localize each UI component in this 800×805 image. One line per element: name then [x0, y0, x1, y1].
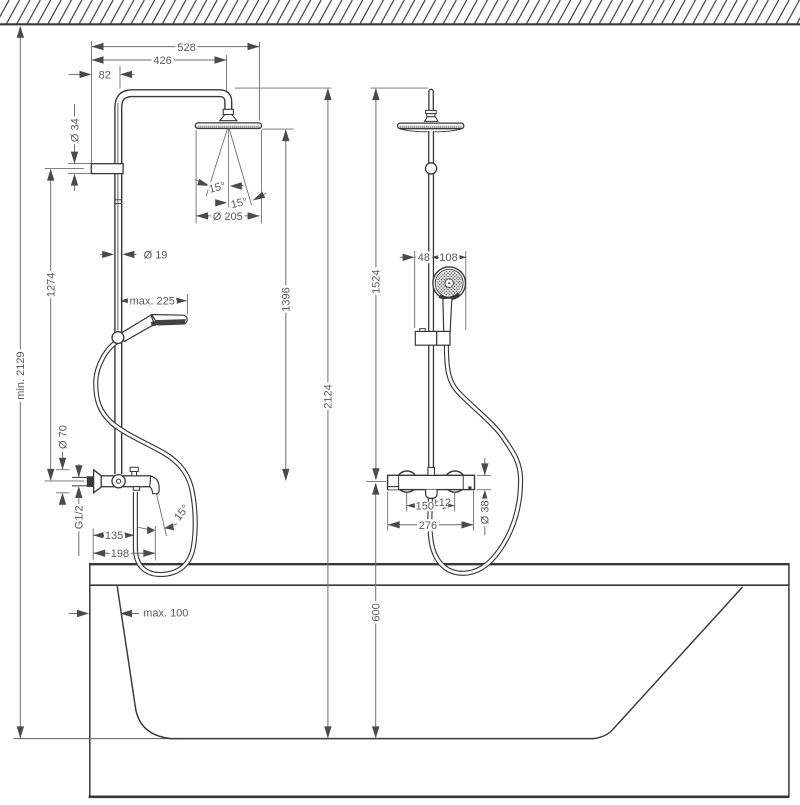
svg-text:Ø 34: Ø 34	[69, 118, 81, 142]
svg-text:1274: 1274	[46, 273, 58, 297]
svg-text:600: 600	[371, 603, 383, 621]
svg-text:Ø 38: Ø 38	[480, 500, 492, 524]
svg-text:Ø 70: Ø 70	[57, 425, 69, 449]
svg-text:528: 528	[177, 42, 195, 54]
svg-text:max. 225: max. 225	[130, 296, 175, 308]
svg-text:±12: ±12	[433, 497, 451, 509]
svg-text:82: 82	[99, 69, 111, 81]
svg-text:108: 108	[439, 252, 457, 264]
svg-text:198: 198	[111, 548, 129, 560]
svg-text:Ø 19: Ø 19	[144, 249, 168, 261]
svg-text:1524: 1524	[371, 269, 383, 293]
svg-text:135: 135	[105, 530, 123, 542]
svg-text:150: 150	[416, 501, 434, 513]
svg-text:2124: 2124	[323, 384, 335, 408]
svg-text:276: 276	[419, 520, 437, 532]
svg-text:48: 48	[418, 252, 430, 264]
svg-text:Ø 205: Ø 205	[213, 211, 243, 223]
svg-text:426: 426	[153, 55, 171, 67]
svg-text:G1/2: G1/2	[74, 505, 86, 529]
svg-text:max. 100: max. 100	[143, 607, 188, 619]
svg-text:min. 2129: min. 2129	[15, 351, 27, 399]
svg-text:1396: 1396	[281, 287, 293, 311]
